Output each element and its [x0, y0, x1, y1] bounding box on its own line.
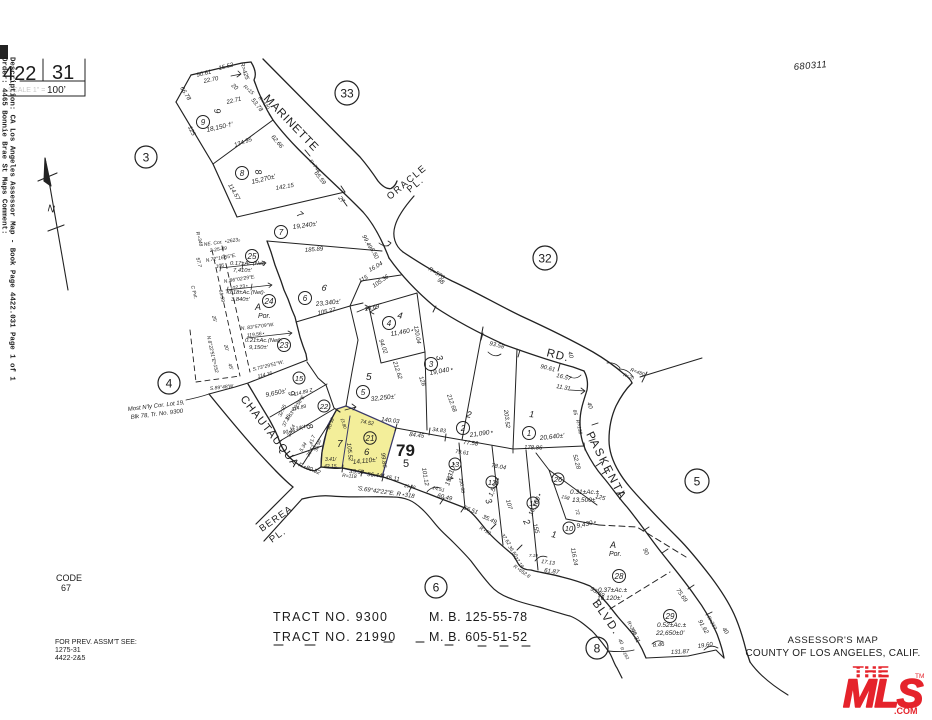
svg-text:1: 1 — [529, 409, 535, 419]
svg-text:155: 155 — [531, 523, 540, 535]
svg-text:61.59: 61.59 — [217, 289, 226, 303]
svg-text:1275-31: 1275-31 — [55, 647, 81, 654]
svg-text:5: 5 — [366, 372, 372, 383]
svg-text:8: 8 — [594, 642, 601, 656]
svg-text:29.39: 29.39 — [403, 483, 416, 490]
svg-text:BLVD.: BLVD. — [590, 598, 623, 638]
svg-text:116.24: 116.24 — [569, 547, 578, 566]
svg-text:105.36: 105.36 — [372, 274, 391, 290]
svg-text:N. 83°57′09″W.: N. 83°57′09″W. — [241, 322, 275, 332]
svg-text:11,460⋆: 11,460⋆ — [390, 327, 414, 338]
svg-text:29: 29 — [665, 612, 675, 621]
svg-text:40: 40 — [616, 638, 624, 646]
svg-text:A: A — [254, 302, 261, 312]
svg-text:158: 158 — [561, 494, 571, 502]
svg-text:1: 1 — [527, 429, 531, 438]
svg-text:22,650±0′: 22,650±0′ — [655, 630, 685, 637]
svg-text:16.57: 16.57 — [556, 373, 573, 383]
svg-text:28: 28 — [614, 572, 624, 581]
svg-text:105.27: 105.27 — [317, 307, 337, 317]
svg-text:S.89°48′W: S.89°48′W — [210, 383, 235, 392]
svg-text:15,310⋆: 15,310⋆ — [444, 462, 458, 487]
svg-text:R=130: R=130 — [574, 419, 583, 435]
svg-text:128: 128 — [417, 376, 426, 388]
svg-text:22: 22 — [319, 402, 329, 411]
svg-text:7,410±′: 7,410±′ — [233, 268, 253, 274]
svg-text:1: 1 — [551, 529, 558, 540]
svg-text:85: 85 — [571, 409, 578, 416]
svg-text:ASSESSOR'S MAP: ASSESSOR'S MAP — [788, 635, 879, 646]
svg-text:0.21±Ac.(Net)·: 0.21±Ac.(Net)· — [245, 338, 283, 344]
svg-text:114.16: 114.16 — [257, 370, 273, 379]
svg-text:8: 8 — [240, 169, 245, 178]
svg-text:35.49: 35.49 — [481, 514, 498, 526]
svg-text:21,090⋆: 21,090⋆ — [468, 429, 494, 439]
svg-text:Description: CA Los Angeles As: Description: CA Los Angeles Assessor Map… — [8, 57, 16, 381]
svg-text:R⋆348: R⋆348 — [194, 231, 204, 247]
svg-text:27: 27 — [336, 195, 346, 205]
svg-text:40: 40 — [585, 402, 593, 411]
svg-text:7.19: 7.19 — [529, 553, 538, 558]
svg-text:R⋆162: R⋆162 — [619, 646, 630, 661]
svg-text:20: 20 — [229, 82, 239, 92]
svg-text:6: 6 — [320, 282, 327, 293]
svg-text:185.89: 185.89 — [305, 246, 324, 254]
svg-text:R⋆80.52: R⋆80.52 — [297, 462, 321, 476]
svg-text:2: 2 — [465, 409, 473, 420]
svg-text:23,340±′: 23,340±′ — [314, 298, 341, 308]
svg-text:77.58: 77.58 — [463, 440, 479, 448]
svg-text:11.31: 11.31 — [556, 384, 571, 392]
svg-text:16.04: 16.04 — [368, 261, 385, 274]
svg-text:3,840±′: 3,840±′ — [231, 297, 251, 303]
svg-text:8.46: 8.46 — [653, 642, 666, 649]
svg-text:5: 5 — [403, 458, 409, 470]
svg-text:120.04: 120.04 — [412, 325, 421, 345]
svg-text:105: 105 — [215, 263, 224, 270]
svg-text:100.68: 100.68 — [457, 477, 466, 493]
svg-text:34.83: 34.83 — [432, 427, 447, 435]
svg-text:M. B. 125-55-78: M. B. 125-55-78 — [429, 610, 528, 624]
svg-text:TM: TM — [915, 673, 924, 680]
svg-text:15: 15 — [295, 374, 304, 383]
svg-text:6: 6 — [303, 294, 308, 303]
svg-text:2-25-49: 2-25-49 — [208, 246, 227, 255]
svg-text:TRACT NO. 9300: TRACT NO. 9300 — [273, 610, 388, 624]
svg-text:25: 25 — [247, 252, 257, 261]
svg-text:45.11: 45.11 — [385, 475, 400, 483]
svg-text:14(4: 14(4 — [295, 424, 306, 432]
svg-text:7: 7 — [337, 439, 343, 450]
svg-text:15.52: 15.52 — [218, 62, 235, 72]
svg-text:65.59: 65.59 — [312, 171, 326, 187]
svg-text:9: 9 — [201, 118, 206, 127]
svg-text:16.69: 16.69 — [364, 304, 381, 313]
svg-text:90: 90 — [641, 548, 649, 557]
svg-text:75.69: 75.69 — [674, 588, 688, 604]
svg-text:90.61: 90.61 — [540, 364, 556, 373]
svg-text:N.8°22′51″E: N.8°22′51″E — [205, 335, 217, 363]
svg-text:203.52: 203.52 — [502, 409, 510, 430]
svg-text:3.41/: 3.41/ — [325, 457, 337, 463]
svg-text:C Pvt.: C Pvt. — [189, 285, 198, 300]
svg-text:32: 32 — [538, 252, 552, 266]
svg-text:3: 3 — [434, 354, 445, 361]
svg-text:4422-2&5: 4422-2&5 — [55, 655, 85, 662]
svg-text:62.66: 62.66 — [269, 134, 284, 150]
svg-text:125: 125 — [186, 125, 196, 137]
svg-text:79.61: 79.61 — [455, 449, 469, 457]
svg-text:4: 4 — [387, 319, 392, 328]
svg-text:9,150±′: 9,150±′ — [249, 345, 269, 351]
svg-text:Por.: Por. — [258, 313, 271, 320]
svg-text:20′: 20′ — [222, 343, 230, 353]
svg-text:100’: 100’ — [47, 85, 66, 96]
svg-text:5: 5 — [694, 475, 701, 489]
svg-text:M. B. 605-51-52: M. B. 605-51-52 — [429, 630, 528, 644]
svg-text:17.13: 17.13 — [541, 559, 556, 567]
svg-text:9: 9 — [212, 108, 223, 115]
svg-text:8.50: 8.50 — [368, 247, 379, 261]
svg-text:20,640±′: 20,640±′ — [538, 432, 565, 442]
svg-text:107: 107 — [504, 499, 513, 511]
svg-text:TRACT NO. 21990: TRACT NO. 21990 — [273, 630, 396, 644]
svg-text:5: 5 — [361, 388, 366, 397]
svg-text:6: 6 — [433, 581, 440, 595]
svg-text:2: 2 — [521, 517, 533, 527]
svg-text:98: 98 — [436, 278, 445, 287]
svg-text:52.28: 52.28 — [571, 454, 581, 471]
svg-text:35.54: 35.54 — [349, 469, 365, 476]
svg-text:R=425: R=425 — [238, 62, 249, 81]
svg-text:45′: 45′ — [226, 363, 234, 372]
svg-text:COUNTY OF LOS ANGELES, CALIF.: COUNTY OF LOS ANGELES, CALIF. — [745, 648, 920, 659]
svg-text:22.70: 22.70 — [202, 76, 220, 85]
svg-text:9,650±′: 9,650±′ — [265, 388, 288, 399]
svg-text:9,430⋆: 9,430⋆ — [576, 519, 597, 530]
svg-text:10: 10 — [565, 524, 574, 533]
svg-text:78.04: 78.04 — [491, 463, 507, 472]
svg-text:40: 40 — [720, 627, 729, 636]
svg-text:R⋆93: R⋆93 — [478, 526, 492, 537]
svg-text:92.31: 92.31 — [628, 628, 640, 644]
svg-text:R=15: R=15 — [242, 84, 255, 97]
svg-text:56.51: 56.51 — [462, 505, 478, 516]
svg-text:178.86: 178.86 — [524, 445, 543, 452]
svg-text:.COM: .COM — [894, 706, 918, 716]
svg-text:CODE: CODE — [56, 573, 82, 583]
svg-text:=152: =152 — [211, 361, 219, 373]
svg-text:FOR PREV. ASSM'T SEE:: FOR PREV. ASSM'T SEE: — [55, 639, 137, 646]
svg-text:212.62: 212.62 — [391, 360, 403, 381]
svg-text:56.44: 56.44 — [367, 472, 383, 480]
svg-text:101.12: 101.12 — [420, 467, 429, 487]
svg-text:90.46: 90.46 — [282, 428, 296, 436]
svg-text:7: 7 — [295, 209, 306, 221]
svg-text:8: 8 — [253, 169, 264, 176]
svg-text:212.68: 212.68 — [445, 393, 457, 414]
svg-text:134.95: 134.95 — [234, 137, 254, 149]
svg-text:32,250±′: 32,250±′ — [370, 393, 396, 403]
svg-text:3: 3 — [429, 360, 434, 369]
svg-text:26: 26 — [553, 475, 563, 484]
svg-text:61.87: 61.87 — [544, 568, 560, 576]
svg-text:31: 31 — [52, 62, 74, 84]
svg-text:680311: 680311 — [793, 59, 827, 73]
svg-text:60.49: 60.49 — [437, 493, 454, 503]
svg-text:42.15: 42.15 — [324, 464, 337, 470]
svg-text:115: 115 — [358, 274, 370, 284]
svg-text:Order: 4465 Bonnie Brae St Map: Order: 4465 Bonnie Brae St Maps Comment: — [0, 57, 8, 234]
svg-text:25′: 25′ — [210, 314, 218, 324]
svg-text:3: 3 — [143, 151, 150, 165]
svg-text:57.7: 57.7 — [194, 257, 202, 268]
svg-text:0.52±Ac.±: 0.52±Ac.± — [657, 622, 687, 629]
svg-text:MARINETTE: MARINETTE — [261, 93, 321, 154]
svg-text:24: 24 — [264, 297, 274, 306]
svg-text:72: 72 — [573, 509, 581, 516]
svg-text:Por.: Por. — [609, 551, 622, 558]
svg-text:19,240±′: 19,240±′ — [292, 221, 318, 231]
svg-text:18,150·†′: 18,150·†′ — [206, 121, 235, 134]
svg-text:93.58: 93.58 — [489, 341, 506, 351]
svg-text:4: 4 — [397, 310, 404, 321]
svg-text:84.45: 84.45 — [409, 432, 425, 440]
svg-text:67: 67 — [61, 583, 71, 593]
svg-text:22.71: 22.71 — [225, 96, 242, 106]
svg-text:4: 4 — [166, 377, 173, 391]
svg-text:21: 21 — [365, 434, 375, 443]
svg-text:A: A — [609, 540, 616, 550]
svg-text:7: 7 — [279, 228, 284, 237]
svg-text:19.60: 19.60 — [697, 642, 713, 650]
svg-text:13,500±′: 13,500±′ — [572, 497, 597, 504]
svg-text:142.15: 142.15 — [275, 183, 295, 192]
svg-text:131.87: 131.87 — [671, 649, 690, 656]
svg-text:2: 2 — [460, 424, 466, 433]
svg-text:RD.: RD. — [545, 347, 570, 364]
svg-text:33: 33 — [340, 87, 354, 101]
